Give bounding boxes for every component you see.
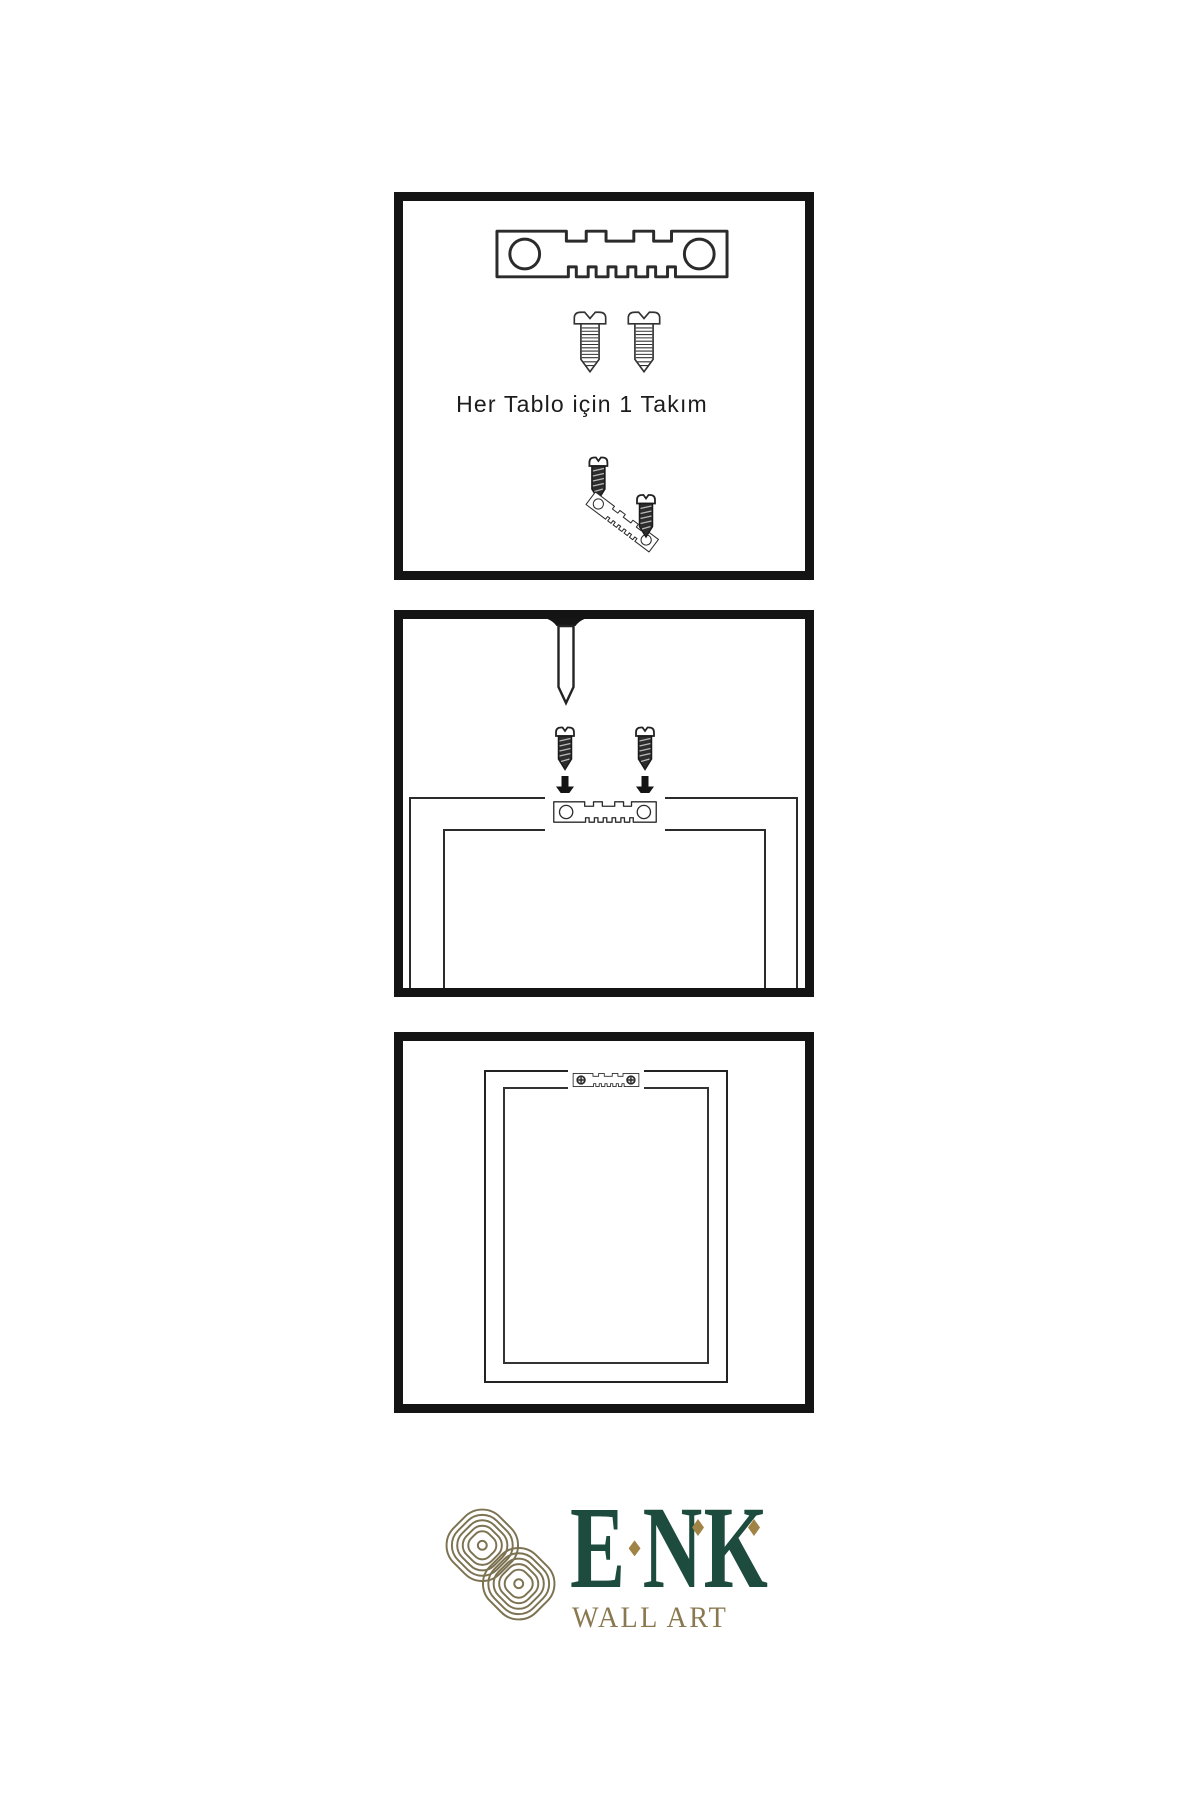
brand-name: ENK — [570, 1489, 769, 1607]
kit-caption: Her Tablo için 1 Takım — [394, 391, 783, 418]
hanger-on-frame — [545, 793, 665, 831]
frame-back-inner-outline — [443, 829, 766, 997]
knot-logo-icon — [438, 1497, 564, 1633]
wall-nail-icon — [539, 613, 593, 717]
panel-hung-frame — [394, 1032, 814, 1413]
sawtooth-hanger-icon — [493, 223, 731, 285]
sawtooth-hanger-icon — [552, 798, 658, 826]
dark-screw-icon — [632, 723, 658, 773]
screw-pair — [571, 305, 663, 379]
screw-icon — [571, 305, 609, 379]
brand-letter: K — [704, 1482, 770, 1613]
hanger-with-screws — [568, 1067, 644, 1093]
tilted-hanger-with-screws-icon — [581, 435, 681, 557]
brand-tagline: WALL ART — [572, 1601, 728, 1635]
screw-with-arrow — [632, 723, 658, 799]
instruction-sheet: Her Tablo için 1 Takım — [0, 0, 1200, 1800]
logo-wordmark: ENK WALL ART — [570, 1517, 800, 1647]
brand-letter: E — [570, 1482, 627, 1613]
sawtooth-hanger-screwed-icon — [572, 1071, 640, 1089]
frame-inner-outline — [503, 1087, 709, 1364]
panel-kit-contents: Her Tablo için 1 Takım — [394, 192, 814, 580]
brand-letter: N — [643, 1482, 704, 1613]
diamond-icon — [629, 1540, 641, 1556]
panel-mounting-step — [394, 610, 814, 997]
dark-screw-icon — [552, 723, 578, 773]
screw-with-arrow — [552, 723, 578, 799]
frame-outline — [484, 1070, 728, 1383]
screw-icon — [625, 305, 663, 379]
